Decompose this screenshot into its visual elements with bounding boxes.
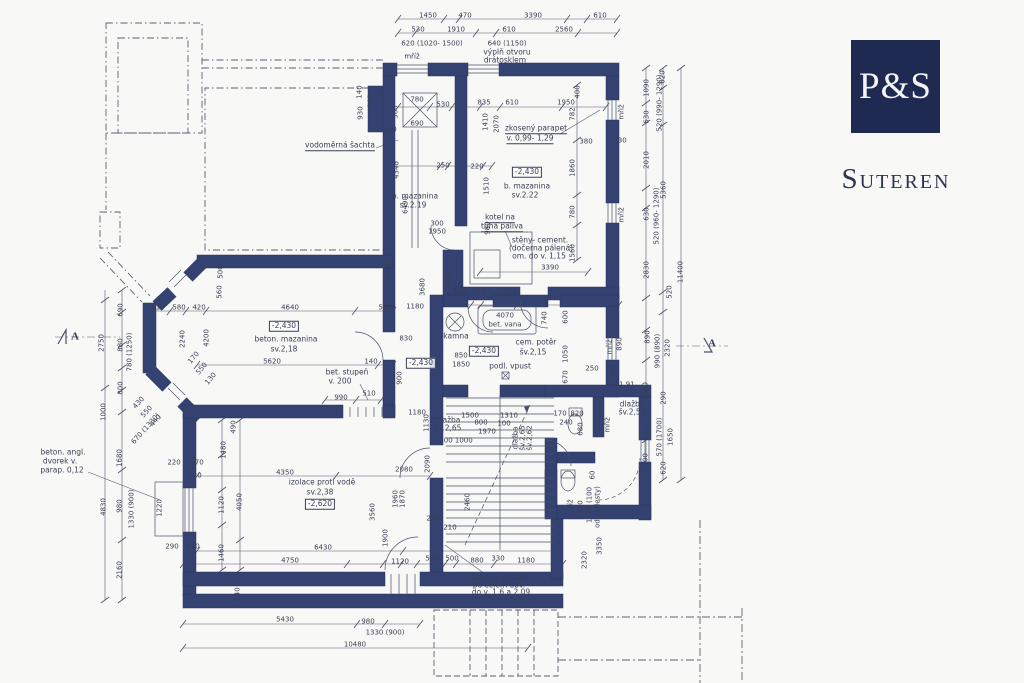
dimension-text: 470 (458, 13, 471, 20)
dimension-text: 2320 (665, 339, 672, 357)
dimension-text: 420 (192, 305, 205, 312)
plan-annotation: sv.2,18 (271, 345, 298, 353)
plan-annotation: parap. 0,12 (40, 466, 83, 474)
dimension-text: 880 (470, 558, 483, 565)
dimension-text: 560 (378, 305, 391, 312)
dimension-text: 580 (172, 305, 185, 312)
dimension-text: 4200 (204, 329, 211, 347)
dimension-text: 140 (378, 88, 385, 101)
dimension-text: 1330 (900) (366, 630, 405, 637)
dimension-text: 1310 (500, 413, 518, 420)
dimension-text: 360 (393, 105, 400, 118)
dimension-text: 630 (644, 110, 651, 123)
dimension-text: 1950 (557, 100, 575, 107)
dimension-text: 3350 (597, 537, 604, 555)
dimension-text: 640 (235, 587, 242, 600)
dimension-text: 2240 (180, 330, 187, 348)
dimension-text: 3390 (524, 13, 542, 20)
dimension-text: 600 (563, 310, 570, 323)
dimension-text: 1910 (447, 27, 465, 34)
dimension-text: 490 (231, 420, 238, 433)
dimension-text: 780 (611, 364, 618, 377)
dimension-text: od podesty) (595, 486, 602, 528)
dimension-text: 2830 (644, 261, 651, 279)
plan-annotation: -2,430 (406, 358, 436, 369)
dimension-text: 2010 (644, 151, 651, 169)
dimension-text: mříž (568, 499, 575, 514)
dimension-text: 780 (410, 97, 423, 104)
dimension-text: 2560 (555, 27, 573, 34)
dimension-text: 330 (491, 556, 504, 563)
dimension-text: 2070 (494, 115, 501, 133)
plan-annotation: šv.2,55 (619, 408, 646, 416)
dimension-text: 3560 (370, 503, 377, 521)
dimension-text: 860 (452, 289, 465, 296)
dimension-text: 1680 (117, 449, 124, 467)
dimension-text: 670 (563, 370, 570, 383)
plan-annotation: beton. mazanina (254, 335, 317, 343)
dimension-text: 500 1000 (439, 438, 472, 445)
dimension-text: 740 (542, 311, 549, 324)
dimension-text: 1120 (391, 559, 409, 566)
dimension-text: 380 (579, 139, 592, 146)
dimension-text: 250 (436, 163, 449, 170)
dimension-text: 780 (570, 205, 577, 218)
plan-annotation: -2,430 (512, 167, 542, 178)
dimension-text: 220 (167, 460, 180, 467)
dimension-text: 310 (472, 289, 485, 296)
plan-annotation: sv.2,38 (307, 488, 334, 496)
walls-group (143, 63, 651, 608)
dimension-text: 520 (667, 285, 674, 298)
dimension-text: 800 (474, 420, 487, 427)
dimension-text: 610 (151, 305, 164, 312)
dimension-text: 820 (570, 411, 583, 418)
plan-annotation: -2,430 (269, 321, 299, 332)
dimension-text: 100 (383, 127, 396, 134)
plan-annotation: podl. vpust (489, 362, 531, 370)
dimension-text: 4350 (276, 470, 294, 477)
dimension-text: 1000 (101, 403, 108, 421)
plan-annotation: kamna (443, 332, 468, 340)
dimension-text: 290 (426, 516, 439, 523)
dimension-text: 1130 (424, 414, 431, 432)
dimension-text: 620 (661, 461, 668, 474)
plan-annotation: -2,430 (469, 346, 499, 357)
dimension-text: 2460 (465, 493, 472, 511)
dimension-text: 60 (590, 471, 597, 480)
plan-annotation: b. mazanina (392, 192, 438, 200)
dimension-text: 870 (578, 500, 585, 513)
plan-annotation: do v. 1,6 a 2,09 (472, 588, 530, 598)
dimension-text: 2160 (117, 561, 124, 579)
dimension-text: 880 (118, 338, 125, 351)
dimension-text: 1480 (221, 441, 228, 459)
dimension-text: 4340 (394, 161, 401, 179)
dimension-text: 1200 (643, 453, 650, 471)
dimension-text: 170 (190, 460, 203, 467)
dimension-text: 5430 (276, 617, 294, 624)
plan-annotation: v. 200 (329, 377, 352, 385)
dimension-text: A (708, 339, 716, 350)
dimension-text: 1410 (483, 113, 490, 131)
dimension-text: 570 (1700) (657, 418, 664, 457)
dimension-text: 835 (477, 100, 490, 107)
dimension-text: 1090 (644, 79, 651, 97)
dimension-text: 5360 (661, 181, 668, 199)
dimension-text: 230 (613, 138, 626, 145)
dimension-text: mříž (605, 417, 612, 432)
dimension-text: 140 (364, 359, 377, 366)
dimension-text: 4830 (101, 498, 108, 516)
dimension-text: 610 (593, 13, 606, 20)
plan-annotation: sv.2.19 (400, 201, 427, 209)
dimension-text: 850 (454, 353, 467, 360)
dimension-text: 990 (890) (655, 334, 662, 368)
plan-annotation: dvorek v. (43, 457, 77, 465)
dimension-text: 220 (470, 164, 483, 171)
dimension-text: 3390 (541, 265, 559, 272)
dimension-text: 560 (425, 556, 438, 563)
dimension-text: 1950 (428, 229, 446, 236)
dimension-text: 300 (430, 221, 443, 228)
dimension-text: 620 (1020- 1500) (401, 41, 462, 48)
dimension-text: bet. vana (488, 322, 521, 329)
dimension-text: 1450 (419, 13, 437, 20)
plan-annotation: cem. potěr (516, 338, 557, 346)
dimension-text: 610 (186, 544, 199, 551)
dimension-text: 930 (358, 106, 365, 119)
dimension-text: 1650 (668, 428, 675, 446)
dimension-text: 5620 (263, 359, 281, 366)
dimension-text: 1050 (563, 345, 570, 363)
dimension-text: 530 (436, 102, 449, 109)
dimension-text: 2080 (395, 467, 413, 474)
dimension-text: 980 (117, 499, 124, 512)
dimension-text: 10480 (344, 642, 366, 649)
plan-annotation: drátosklem (484, 56, 526, 64)
dimension-text: komín (385, 259, 392, 280)
dimension-text: 4070 (496, 313, 514, 320)
dimension-text: mříž (607, 339, 614, 354)
plan-annotation: beton. angl. (40, 448, 85, 456)
dimension-text: 510 (362, 391, 375, 398)
plan-annotation: b. mazanina (504, 182, 550, 190)
plan-annotation: izolace proti vodě (289, 478, 356, 486)
dimension-text: 500 (445, 556, 458, 563)
dimension-text: 690 (410, 121, 423, 128)
dimension-text: 500 (218, 265, 225, 278)
dimension-text: 780 (1250) (127, 333, 134, 372)
plan-annotation: v. 0,99- 1,29 (506, 134, 553, 144)
dimension-text: 140 (357, 85, 364, 98)
plan-annotation: -2,620 (305, 499, 335, 510)
dimension-text: 560 (217, 285, 224, 298)
plan-title: Suteren (818, 163, 974, 196)
dimension-text: 1860 (570, 159, 577, 177)
dimension-text: 520 (960- 1290) (654, 188, 661, 245)
dimension-text: 890 (645, 330, 652, 343)
dimension-text: 170 (553, 411, 566, 418)
dimension-text: 890 (617, 337, 624, 350)
dimension-text: 400 (575, 85, 582, 98)
dimension-text: 2750 (99, 334, 106, 352)
dimension-text: 1330 (900) (129, 490, 136, 529)
dimension-text: šv.2,62 (527, 425, 534, 450)
dimension-text: 980 (361, 619, 374, 626)
dimension-text: 530 (411, 27, 424, 34)
dimension-text: 900 (397, 371, 404, 384)
plan-annotation: vodoměrná šachta (305, 141, 375, 151)
plan-annotation: šv.2,65 (435, 424, 462, 432)
dimension-text: 1180 (517, 558, 535, 565)
dimension-text: 830 (399, 336, 412, 343)
dimension-text: 250 (585, 366, 598, 373)
dimension-text: 680 (578, 422, 585, 435)
logo-monogram: P&S (859, 65, 932, 108)
dimension-text: 782 (570, 107, 577, 120)
dimension-text: 2320 (582, 551, 589, 569)
dimension-text: 100 (497, 421, 510, 428)
dimension-text: 1180 (406, 304, 424, 311)
dimension-text: 220 (188, 473, 201, 480)
dimension-text: 1220 (157, 499, 164, 517)
dimension-text: 440 (645, 426, 652, 439)
dimension-text: 3680 (420, 278, 427, 296)
plan-annotation: sv.2.22 (512, 191, 539, 199)
dimension-text: 1870 (400, 490, 407, 508)
dimension-text: 610 (505, 100, 518, 107)
dimension-text: 2090 (425, 455, 432, 473)
dimension-text: 1120 (219, 496, 226, 514)
dimension-text: v.1,91 (613, 382, 634, 389)
dimension-text: 800 (118, 381, 125, 394)
plan-canvas: 1450470339061053019106102560620 (1020- 1… (0, 0, 1024, 683)
dimension-text: 1120 (499, 290, 517, 297)
plan-annotation: om. do v. 1,15 (512, 252, 566, 260)
dimension-text: A (71, 332, 79, 343)
dimension-text: mříž (404, 54, 419, 61)
dimension-text: 1970 (478, 429, 496, 436)
dimension-text: 240 (559, 420, 572, 427)
dimension-text: 690 (118, 303, 125, 316)
dimension-text: 290 (661, 391, 668, 404)
dimension-text: 1510 (484, 177, 491, 195)
dimension-text: 1460 (219, 544, 226, 562)
dimension-text: 610 (502, 27, 515, 34)
plan-annotation: bet. stupeň (326, 368, 369, 376)
dimension-text: 1670 (643, 382, 650, 400)
dimension-text: komín (446, 266, 453, 287)
dimension-text: 520 (990- 1290) (657, 75, 664, 132)
dimension-text: 1900 (383, 529, 390, 547)
dimension-text: 290 (165, 544, 178, 551)
dimension-text: mříž (619, 104, 626, 119)
dimension-text: 630 (644, 207, 651, 220)
dimension-text: 140 (368, 94, 375, 107)
dimension-text: 4640 (281, 305, 299, 312)
dimension-text: 11400 (678, 261, 685, 283)
plan-annotation: šv.2,15 (520, 348, 547, 356)
dimension-text: mříž (619, 207, 626, 222)
dimension-text: 6430 (314, 545, 332, 552)
dimension-text: 4750 (281, 558, 299, 565)
dimension-text: 1160 (100 (587, 487, 594, 523)
dimension-text: 1850 (452, 362, 470, 369)
dimension-text: 990 (334, 395, 347, 402)
dimension-text: 4050 (237, 493, 244, 511)
plan-annotation: tuhá paliva (481, 222, 523, 232)
dimension-text: 210 (443, 525, 456, 532)
company-logo: P&S (851, 40, 940, 133)
